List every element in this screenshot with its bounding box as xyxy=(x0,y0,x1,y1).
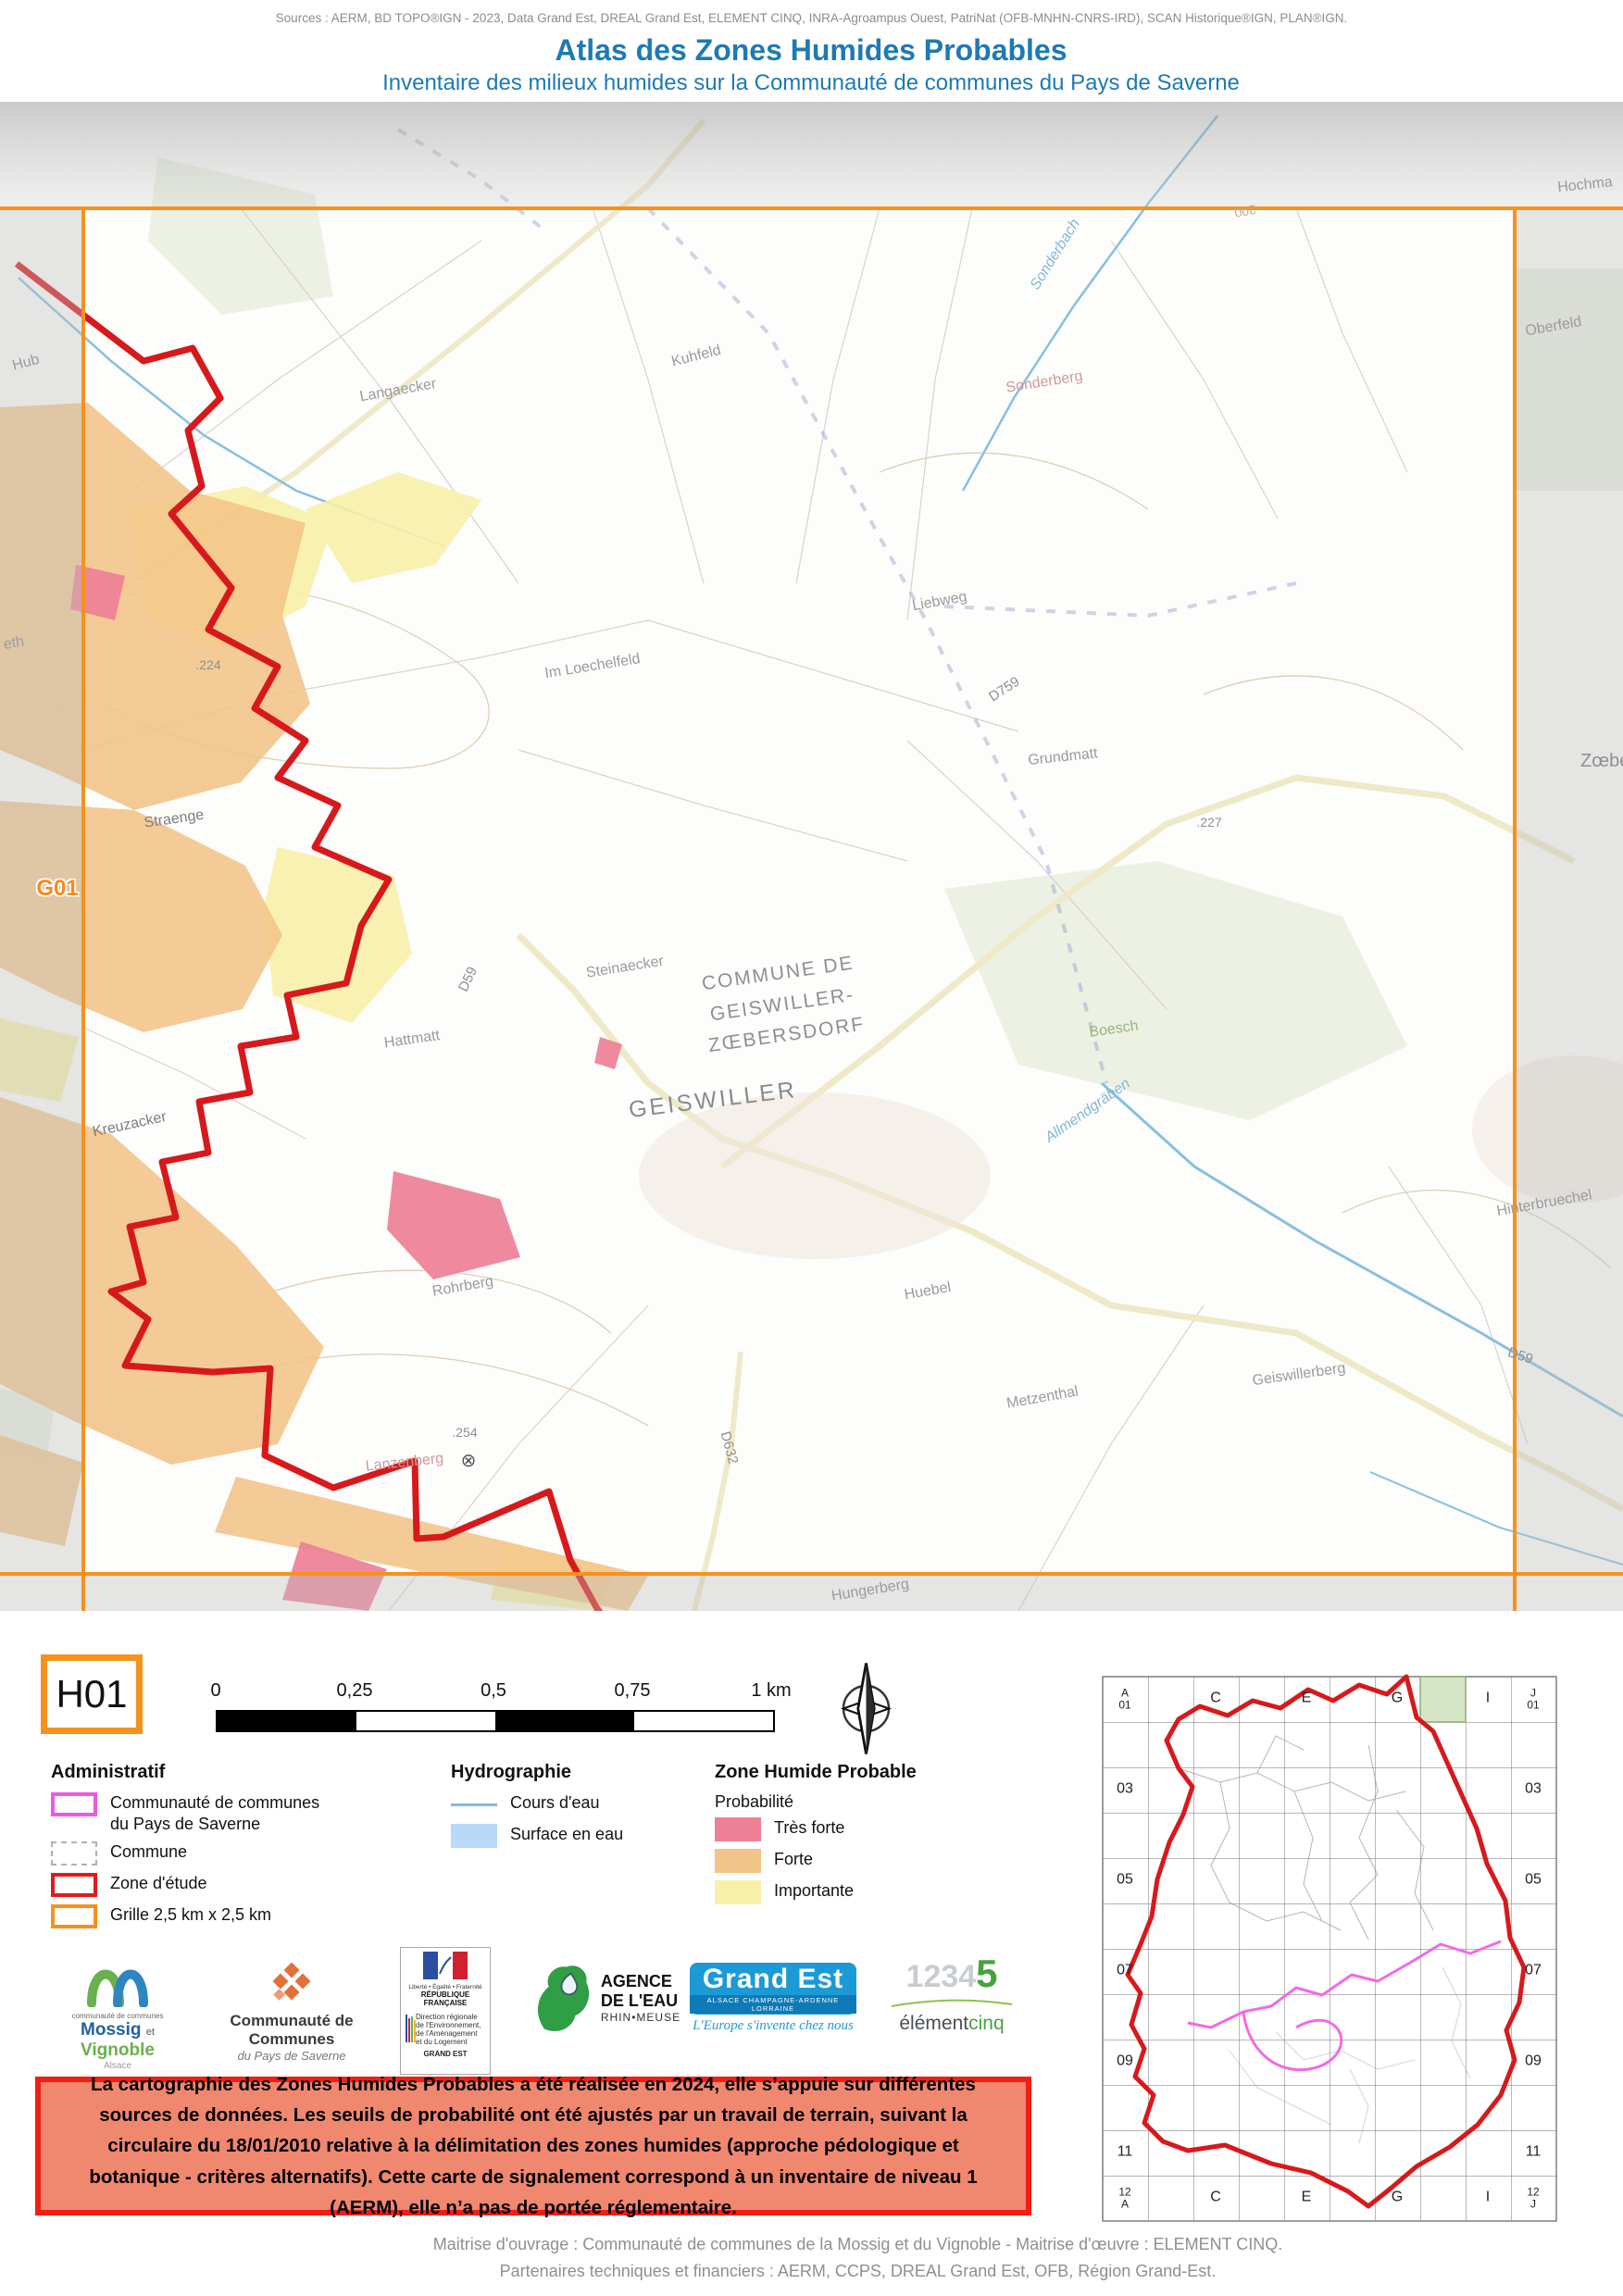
overview-graphics xyxy=(1091,1662,1567,2228)
overview-grid-label: I xyxy=(1486,2190,1490,2206)
scalebar-tick: 1 km xyxy=(751,1680,791,1702)
agence-name3: RHIN•MEUSE xyxy=(601,2011,680,2024)
dreal-direction: Direction régionale de l'Environnement, … xyxy=(416,2013,481,2046)
overview-grid-label: G xyxy=(1392,1691,1403,1707)
overview-current-cell xyxy=(1420,1677,1466,1722)
dreal-republic: RÉPUBLIQUE FRANÇAISE xyxy=(405,1990,486,2007)
map-place-label: 200 xyxy=(1233,199,1258,223)
overview-grid-label: E xyxy=(1302,2190,1312,2206)
disclaimer-box: La cartographie des Zones Humides Probab… xyxy=(35,2077,1031,2215)
grand-est-strip: ALSACE CHAMPAGNE-ARDENNE LORRAINE xyxy=(690,1995,856,2014)
logo-mossig-vignoble: communauté de communes Mossig et Vignobl… xyxy=(48,1955,187,2071)
legend-item: Communauté de communesdu Pays de Saverne xyxy=(51,1792,421,1834)
legend-label: Grille 2,5 km x 2,5 km xyxy=(110,1904,271,1926)
north-arrow-icon xyxy=(818,1660,915,1757)
overview-grid-label: 07 xyxy=(1525,1964,1542,1979)
agence-name1: AGENCE xyxy=(601,1972,680,1991)
overview-grid-label: C xyxy=(1210,1691,1221,1707)
page-title: Atlas des Zones Humides Probables xyxy=(70,33,1552,68)
legend-swatch xyxy=(715,1880,761,1904)
legend-title: Administratif xyxy=(51,1762,421,1783)
grand-est-box: Grand Est ALSACE CHAMPAGNE-ARDENNE LORRA… xyxy=(690,1963,856,2015)
legend-label: Commune xyxy=(110,1841,187,1863)
legend-hydrographie: Hydrographie Cours d'eau Surface en eau xyxy=(451,1762,692,1855)
logo-dreal: Liberté • Égalité • Fraternité RÉPUBLIQU… xyxy=(400,1947,491,2075)
main-map: HubLangaeckerKuhfeldSonderbach200HochmaO… xyxy=(0,102,1623,1611)
scalebar-bar xyxy=(216,1710,775,1732)
scalebar-ticks: 00,250,50,751 km xyxy=(216,1680,771,1704)
legend-swatch xyxy=(51,1841,97,1865)
overview-grid-label: 05 xyxy=(1117,1873,1133,1889)
agence-name2: DE L'EAU xyxy=(601,1991,680,2011)
grand-est-name: Grand Est xyxy=(703,1964,843,1995)
map-place-label: ⊗ xyxy=(461,1446,477,1476)
overview-grid-label: 11 xyxy=(1526,2145,1542,2161)
overview-grid-label: A 01 xyxy=(1118,1687,1130,1710)
overview-map: A 01CEGIJ 010303050507070909111112 ACEGI… xyxy=(1091,1662,1567,2228)
scalebar-segment xyxy=(356,1712,495,1730)
map-place-label: Zœber xyxy=(1580,746,1623,776)
legend-label: Importante xyxy=(774,1880,854,1902)
legend-item: Surface en eau xyxy=(451,1824,692,1848)
grand-est-tagline: L'Europe s'invente chez nous xyxy=(690,2018,856,2034)
legend-item: Grille 2,5 km x 2,5 km xyxy=(51,1904,421,1928)
agence-eau-icon xyxy=(529,1958,595,2038)
footer: Maitrise d'ouvrage : Communauté de commu… xyxy=(93,2231,1623,2285)
footer-line2: Partenaires techniques et financiers : A… xyxy=(93,2258,1623,2285)
scalebar-segment xyxy=(495,1712,634,1730)
legend-zone-humide: Zone Humide Probable Probabilité Très fo… xyxy=(715,1762,993,1912)
legend-label: Zone d'étude xyxy=(110,1873,207,1894)
logo-grand-est: Grand Est ALSACE CHAMPAGNE-ARDENNE LORRA… xyxy=(690,1963,856,2034)
map-place-label: eth xyxy=(2,630,26,656)
footer-line1: Maitrise d'ouvrage : Communauté de commu… xyxy=(93,2231,1623,2258)
overview-grid-label: J 01 xyxy=(1527,1687,1539,1710)
overview-grid-label: 12 A xyxy=(1118,2186,1130,2209)
scalebar-tick: 0,5 xyxy=(481,1680,506,1702)
legend-label: Forte xyxy=(774,1849,813,1870)
ccps-name: Communauté de Communes xyxy=(190,2012,393,2049)
legend-title: Hydrographie xyxy=(451,1762,692,1783)
grid-cell-label: G01 xyxy=(36,876,78,902)
overview-grid-label: 12 J xyxy=(1527,2186,1539,2209)
scalebar-tick: 0 xyxy=(210,1680,220,1702)
overview-grid-label: 11 xyxy=(1117,2145,1133,2161)
overview-grid-label: 03 xyxy=(1117,1782,1133,1798)
overview-grid-label: I xyxy=(1486,1691,1490,1707)
ccps-logo-icon xyxy=(266,1963,318,2007)
sources-line: Sources : AERM, BD TOPO®IGN - 2023, Data… xyxy=(0,11,1623,25)
page-subtitle: Inventaire des milieux humides sur la Co… xyxy=(70,70,1552,96)
legend-label-line2: du Pays de Saverne xyxy=(110,1814,319,1835)
ccps-subname: du Pays de Saverne xyxy=(190,2049,393,2063)
logo-ccps: Communauté de Communes du Pays de Savern… xyxy=(190,1963,393,2063)
legend-swatch xyxy=(451,1792,497,1816)
legend-swatch xyxy=(715,1817,761,1841)
dreal-bars-icon xyxy=(405,2013,416,2044)
scalebar-segment xyxy=(634,1712,773,1730)
legend-label: Cours d'eau xyxy=(510,1792,600,1814)
overview-grid-label: G xyxy=(1392,2190,1403,2206)
map-place-label: .224 xyxy=(195,655,220,675)
legend-label: Communauté de communes xyxy=(110,1792,319,1814)
french-flag-icon xyxy=(423,1952,468,1979)
legend-swatch xyxy=(451,1824,497,1848)
element-cinq-digits: 12345 xyxy=(878,1952,1026,1996)
legend-item: Très forte xyxy=(715,1817,993,1841)
legend-swatch xyxy=(51,1792,97,1816)
legend-administratif: Administratif Communauté de communesdu P… xyxy=(51,1762,421,1936)
scalebar-segment xyxy=(218,1712,356,1730)
legend-swatch xyxy=(51,1904,97,1928)
legend-item: Importante xyxy=(715,1880,993,1904)
legend-subtitle: Probabilité xyxy=(715,1792,993,1812)
map-base-graphics xyxy=(0,102,1623,1611)
mossig-logo-icon xyxy=(82,1955,153,2007)
element-cinq-swoosh-icon xyxy=(887,1999,1017,2008)
overview-grid-label: C xyxy=(1210,2190,1221,2206)
current-cell-badge: H01 xyxy=(41,1654,143,1734)
legend-title: Zone Humide Probable xyxy=(715,1762,993,1783)
logo-agence-eau: AGENCE DE L'EAU RHIN•MEUSE xyxy=(517,1958,693,2038)
legend-item: Cours d'eau xyxy=(451,1792,692,1816)
mossig-name: Mossig et Vignoble xyxy=(48,2020,187,2061)
disclaimer-text: La cartographie des Zones Humides Probab… xyxy=(65,2069,1002,2223)
legend-label: Très forte xyxy=(774,1817,844,1839)
map-place-label: .254 xyxy=(452,1422,477,1442)
logo-element-cinq: 12345 élémentcinq xyxy=(878,1952,1026,2035)
overview-grid-label: 05 xyxy=(1525,1873,1542,1889)
overview-grid-label: 09 xyxy=(1525,2054,1542,2070)
overview-grid-label: E xyxy=(1302,1691,1312,1707)
legend-swatch xyxy=(715,1849,761,1873)
legend-item: Forte xyxy=(715,1849,993,1873)
legend-swatch xyxy=(51,1873,97,1897)
legend-item: Commune xyxy=(51,1841,421,1865)
element-cinq-name: élémentcinq xyxy=(878,2013,1026,2035)
legend-label: Surface en eau xyxy=(510,1824,623,1845)
scalebar-tick: 0,75 xyxy=(615,1680,651,1702)
dreal-motto: Liberté • Égalité • Fraternité xyxy=(405,1984,486,1990)
mossig-small-text: communauté de communes xyxy=(48,2012,187,2020)
scalebar-tick: 0,25 xyxy=(337,1680,373,1702)
legend-item: Zone d'étude xyxy=(51,1873,421,1897)
overview-grid-label: 03 xyxy=(1525,1782,1542,1798)
scalebar: 00,250,50,751 km xyxy=(216,1680,790,1745)
overview-grid-label: 09 xyxy=(1117,2054,1133,2070)
map-place-label: .227 xyxy=(1196,812,1221,832)
dreal-region: GRAND EST xyxy=(405,2050,486,2058)
overview-grid-label: 07 xyxy=(1117,1964,1133,1979)
